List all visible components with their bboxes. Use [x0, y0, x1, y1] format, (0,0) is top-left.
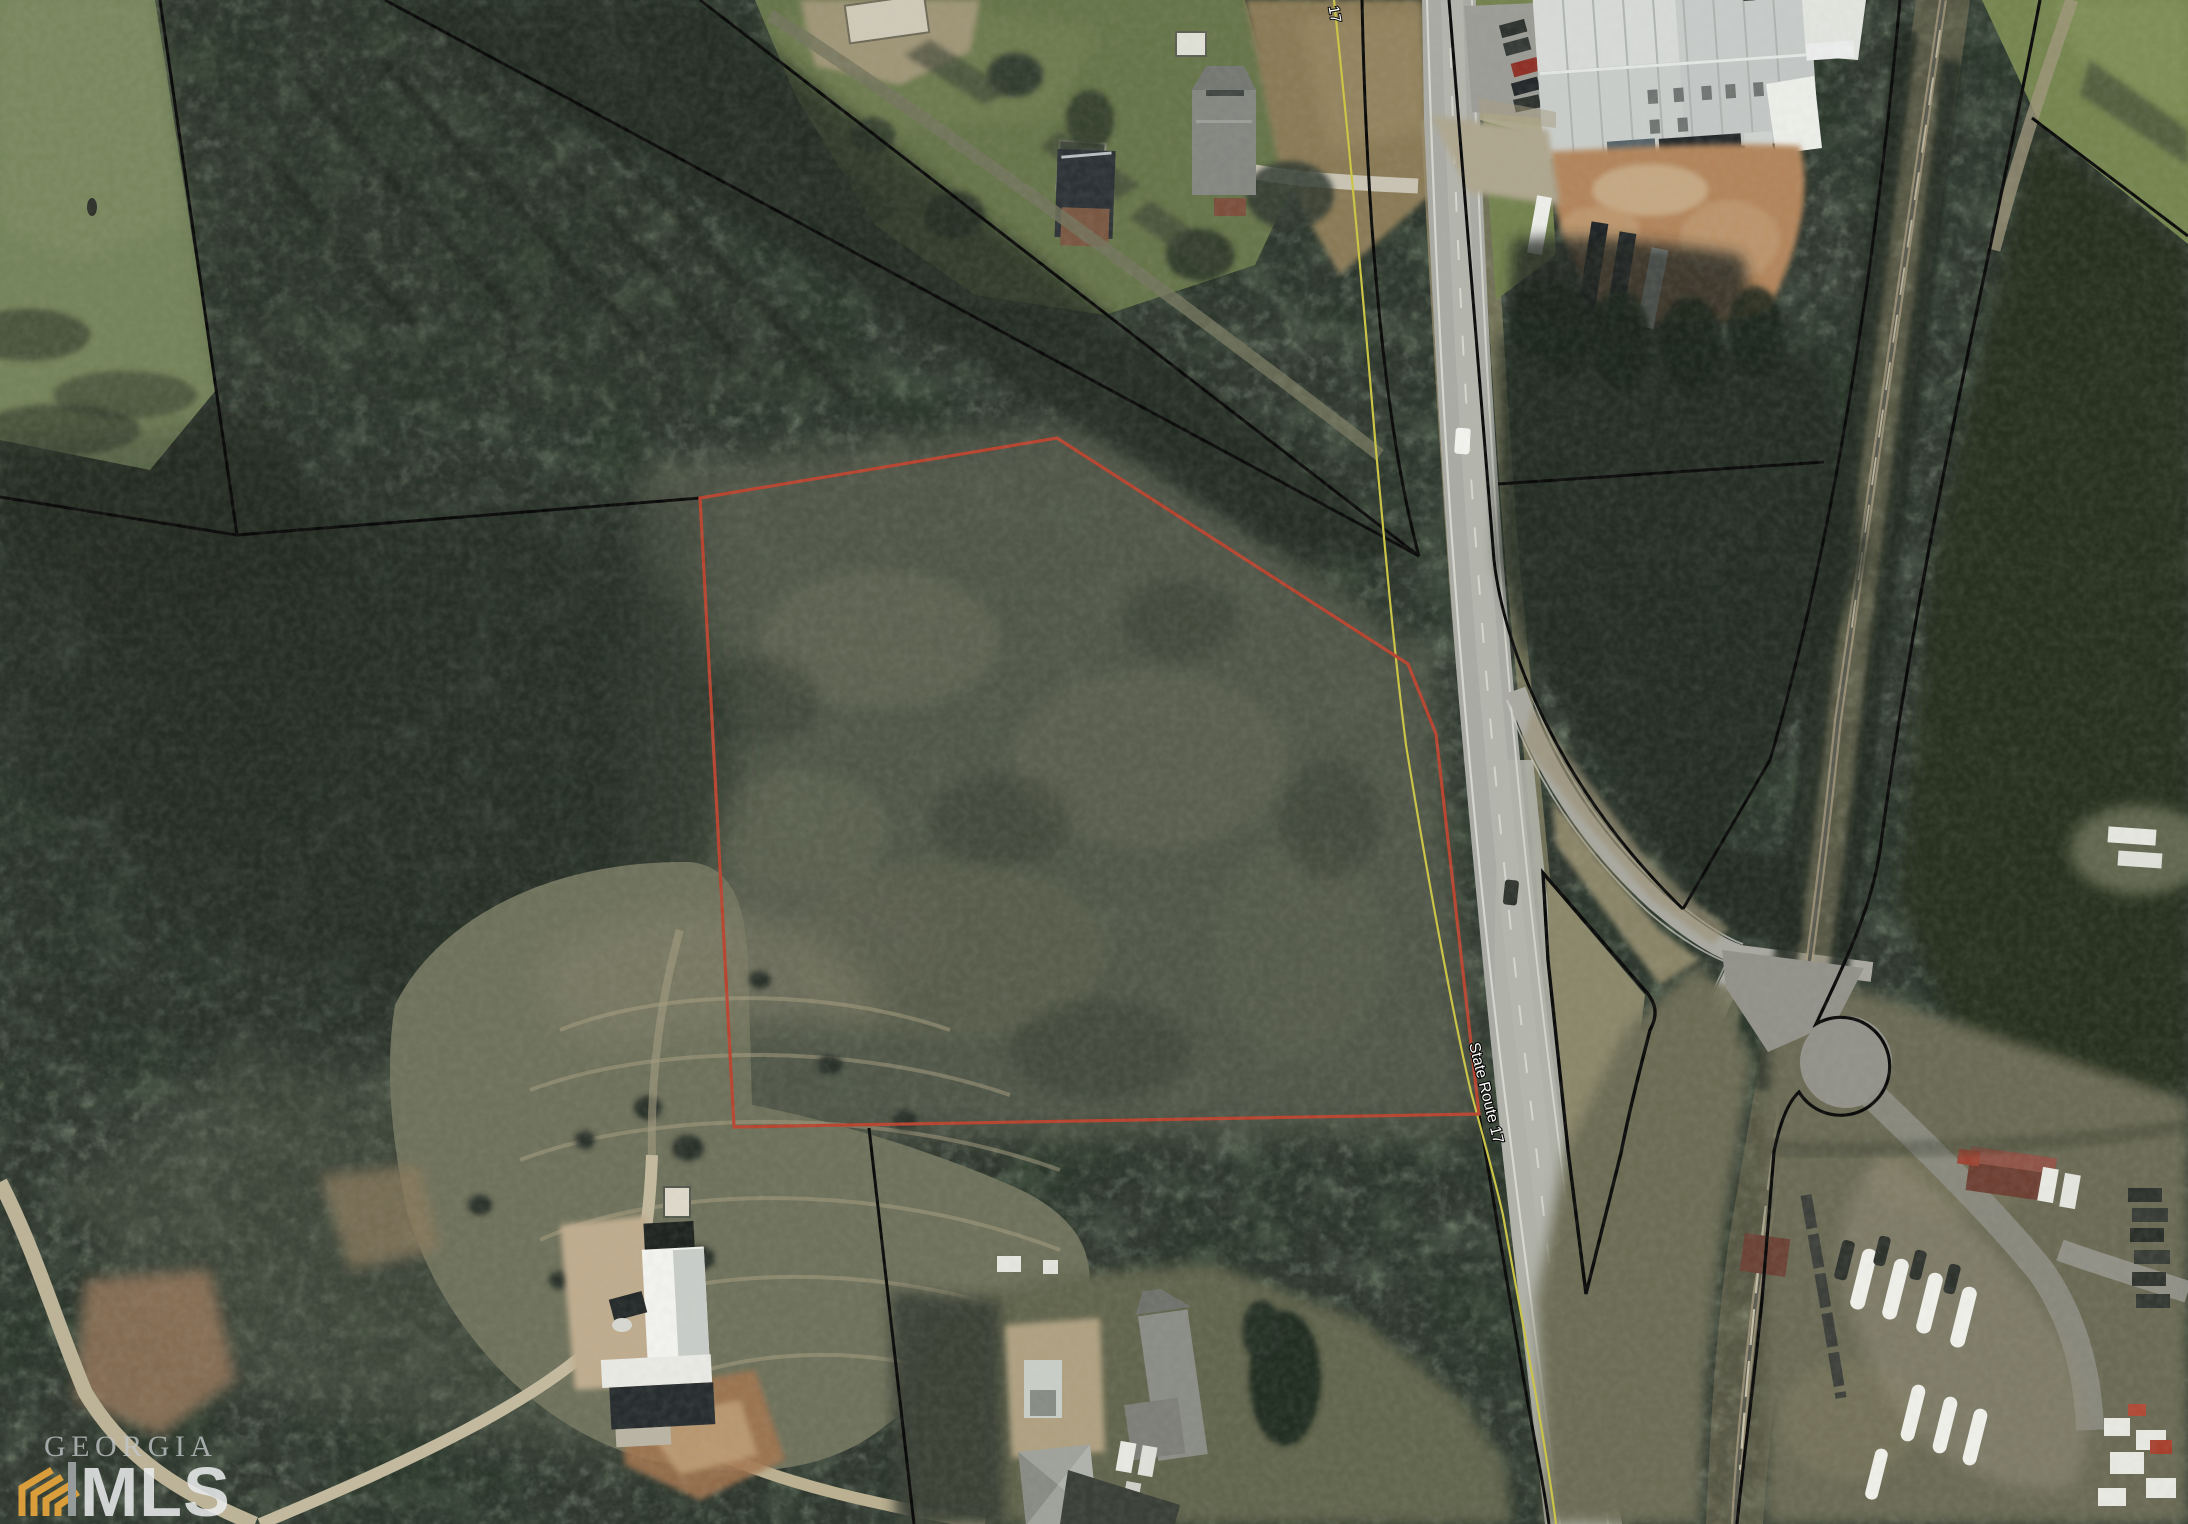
svg-text:MLS: MLS	[80, 1453, 231, 1524]
